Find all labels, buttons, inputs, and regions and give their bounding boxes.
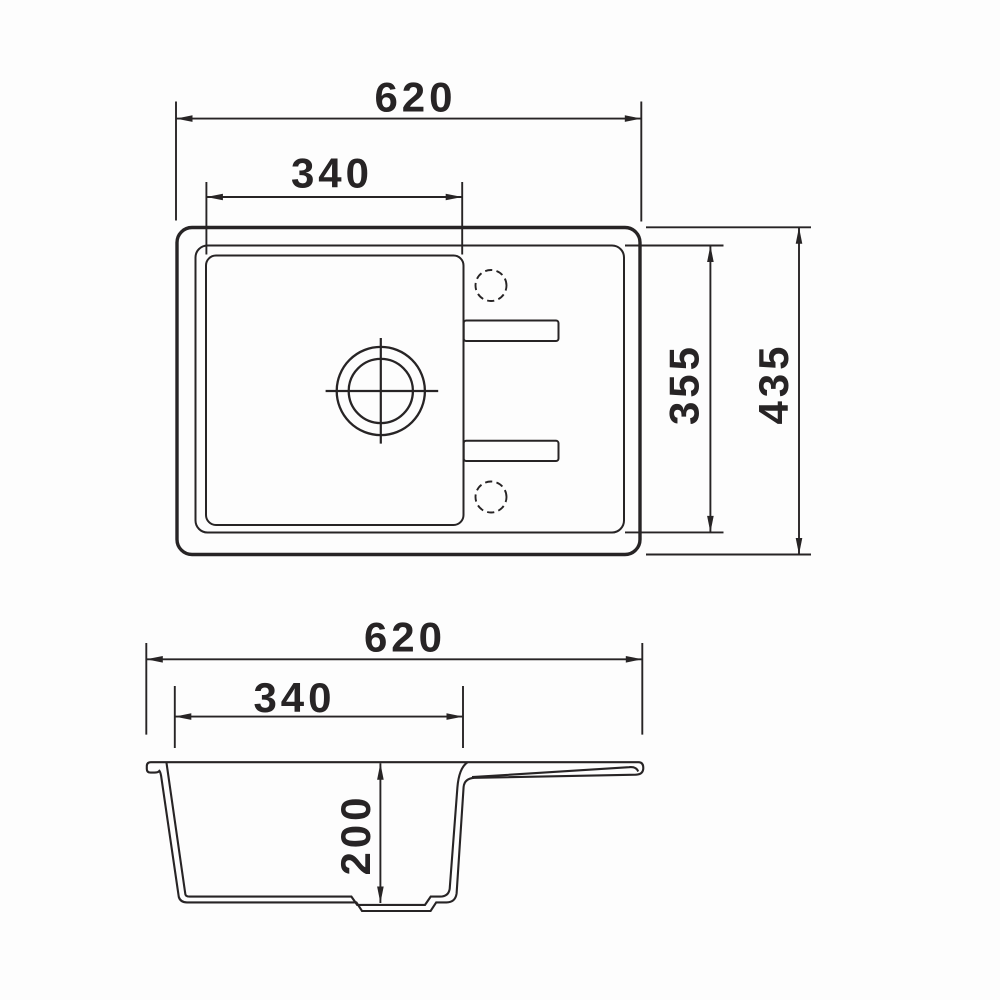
svg-text:435: 435 xyxy=(750,342,797,424)
svg-text:355: 355 xyxy=(661,343,708,425)
svg-text:620: 620 xyxy=(374,74,456,121)
svg-text:340: 340 xyxy=(291,150,373,197)
svg-text:620: 620 xyxy=(364,614,446,661)
svg-text:200: 200 xyxy=(332,793,379,875)
svg-text:340: 340 xyxy=(253,674,335,721)
